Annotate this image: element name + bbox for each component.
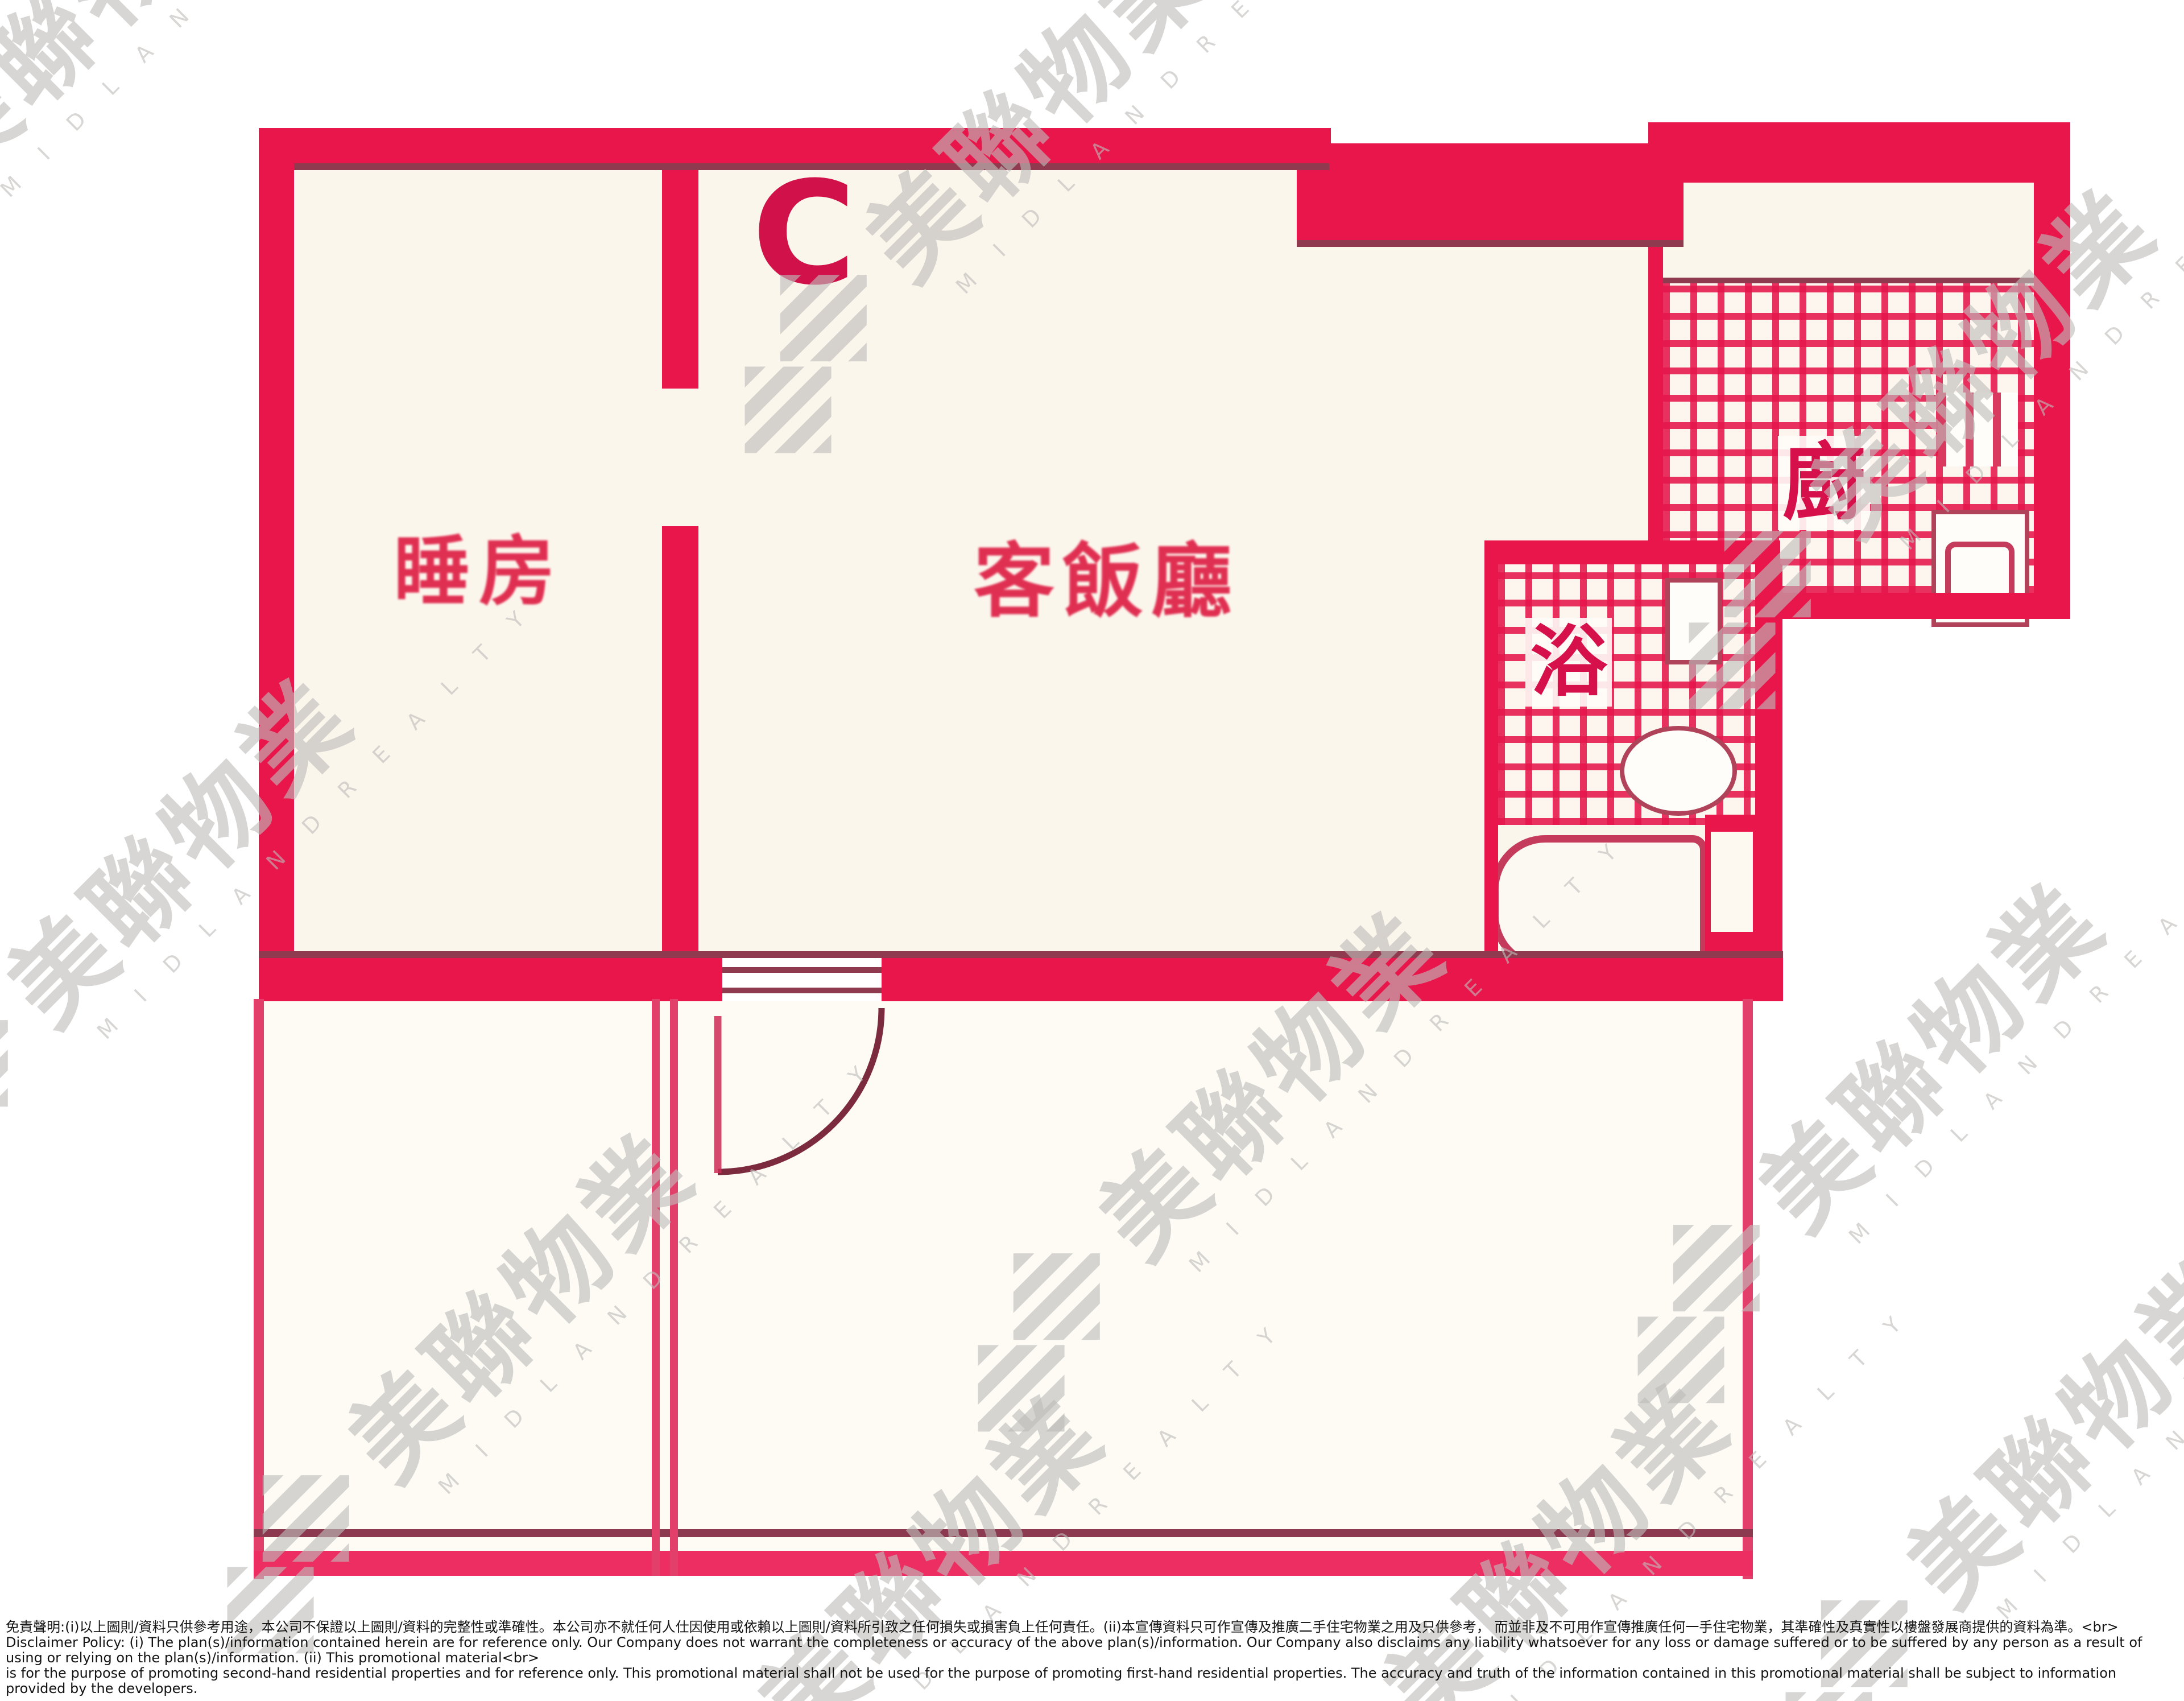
disclaimer-line-en2: is for the purpose of promoting second-h… — [6, 1666, 2178, 1696]
disclaimer-text: 免責聲明:(i)以上圖則/資料只供參考用途，本公司不保證以上圖則/資料的完整性或… — [6, 1620, 2178, 1696]
disclaimer-line-zh: 免責聲明:(i)以上圖則/資料只供參考用途，本公司不保證以上圖則/資料的完整性或… — [6, 1620, 2178, 1635]
kitchen-label: 廚 — [1778, 436, 1870, 530]
door-swing — [0, 0, 2184, 1701]
living-dining-label: 客飯廳 — [974, 542, 1240, 622]
entry-door-opening — [1711, 832, 1753, 932]
floor-plan-canvas: C 睡房 客飯廳 浴 廚 美聯物業M I D L A N D R E A L T… — [0, 0, 2184, 1701]
bedroom-label: 睡房 — [394, 534, 564, 610]
unit-label: C — [752, 163, 856, 305]
disclaimer-line-en1: Disclaimer Policy: (i) The plan(s)/infor… — [6, 1635, 2178, 1666]
bathroom-label: 浴 — [1525, 618, 1612, 707]
